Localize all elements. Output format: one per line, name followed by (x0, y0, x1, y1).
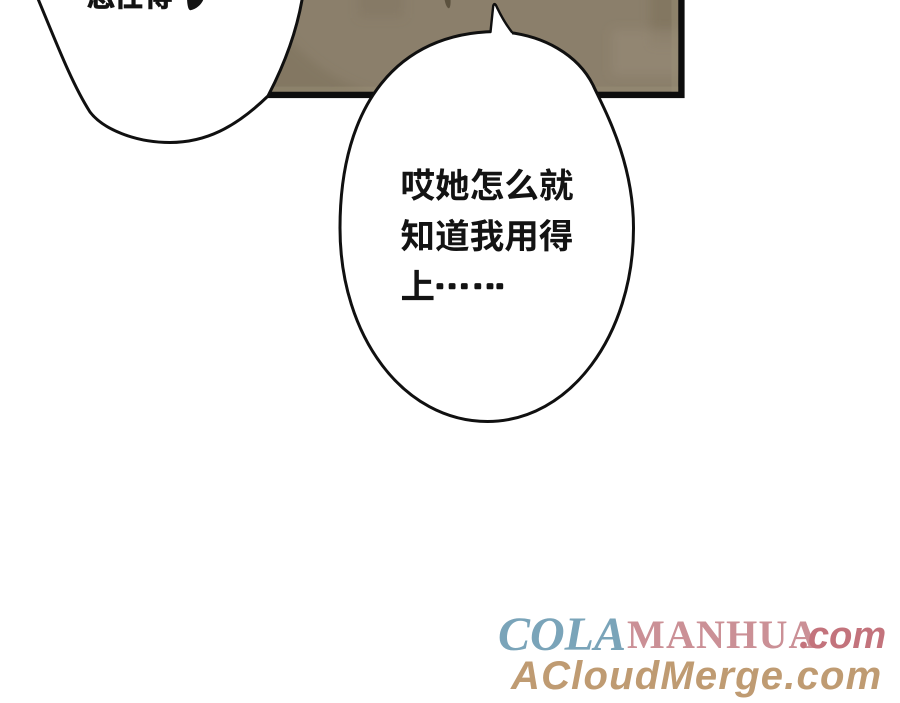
svg-text:ACloudMerge.com: ACloudMerge.com (510, 654, 882, 698)
svg-text:MANHUA: MANHUA (627, 612, 819, 657)
svg-text:com: com (808, 615, 886, 657)
